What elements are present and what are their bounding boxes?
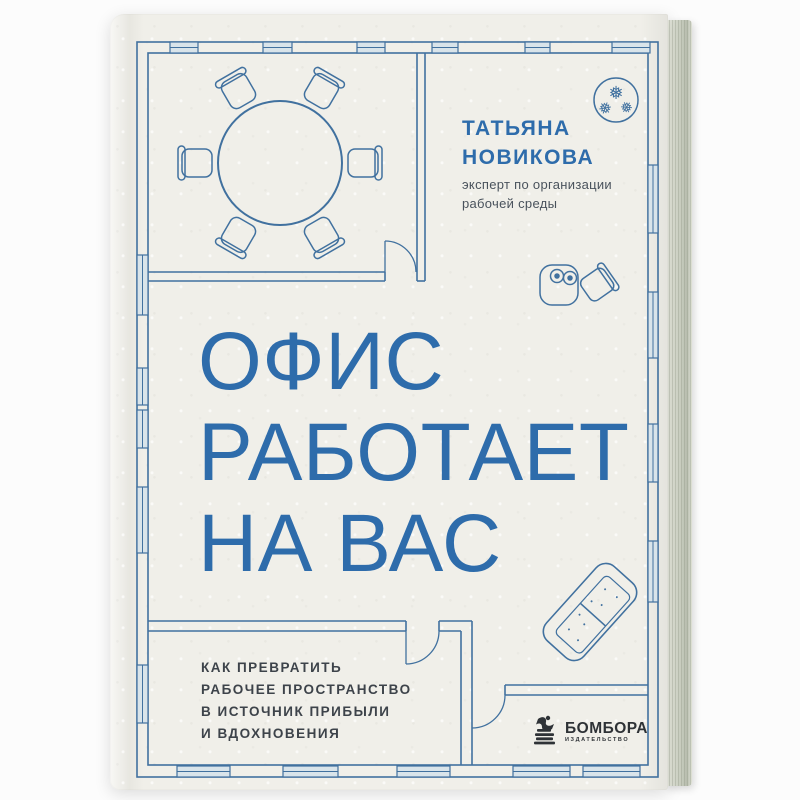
author-role-line1: эксперт по организации bbox=[462, 175, 612, 194]
svg-text:❅: ❅ bbox=[608, 83, 623, 103]
book-product-photo: ❅ ❅ ❅ bbox=[0, 0, 800, 800]
meeting-chairs bbox=[178, 66, 382, 260]
coffee-chair-icon bbox=[577, 262, 621, 306]
chair-icon bbox=[214, 213, 260, 259]
book-front-cover: ❅ ❅ ❅ bbox=[110, 14, 668, 790]
subtitle-line: КАК ПРЕВРАТИТЬ bbox=[201, 657, 412, 679]
door-icon bbox=[406, 631, 505, 728]
book: ❅ ❅ ❅ bbox=[110, 14, 690, 790]
title-line3: НА ВАС bbox=[198, 498, 629, 589]
door-icon bbox=[385, 241, 416, 272]
publisher-tagline: ИЗДАТЕЛЬСТВО bbox=[565, 737, 648, 744]
book-title: ОФИС РАБОТАЕТ НА ВАС bbox=[198, 316, 629, 589]
book-page-edges bbox=[666, 20, 692, 786]
title-line1: ОФИС bbox=[198, 316, 629, 407]
author-name-line1: ТАТЬЯНА bbox=[462, 114, 612, 143]
chair-icon bbox=[299, 213, 345, 259]
chair-icon bbox=[214, 66, 260, 112]
publisher-name: БОМБОРА bbox=[565, 721, 648, 737]
subtitle-line: РАБОЧЕЕ ПРОСТРАНСТВО bbox=[201, 679, 412, 701]
meeting-room-walls bbox=[148, 53, 425, 281]
subtitle-line: И ВДОХНОВЕНИЯ bbox=[201, 723, 412, 745]
author-name-line2: НОВИКОВА bbox=[462, 143, 612, 172]
book-subtitle: КАК ПРЕВРАТИТЬ РАБОЧЕЕ ПРОСТРАНСТВО В ИС… bbox=[201, 657, 412, 745]
author-block: ТАТЬЯНА НОВИКОВА эксперт по организации … bbox=[462, 114, 612, 213]
meeting-table-icon bbox=[218, 101, 342, 225]
subtitle-line: В ИСТОЧНИК ПРИБЫЛИ bbox=[201, 701, 412, 723]
bombora-logo-icon bbox=[531, 715, 559, 751]
chair-icon bbox=[178, 146, 212, 180]
chair-icon bbox=[299, 66, 345, 112]
chair-icon bbox=[348, 146, 382, 180]
coffee-table-icon bbox=[540, 265, 578, 305]
author-role-line2: рабочей среды bbox=[462, 194, 612, 213]
publisher-block: БОМБОРА ИЗДАТЕЛЬСТВО bbox=[531, 715, 648, 751]
title-line2: РАБОТАЕТ bbox=[198, 407, 629, 498]
